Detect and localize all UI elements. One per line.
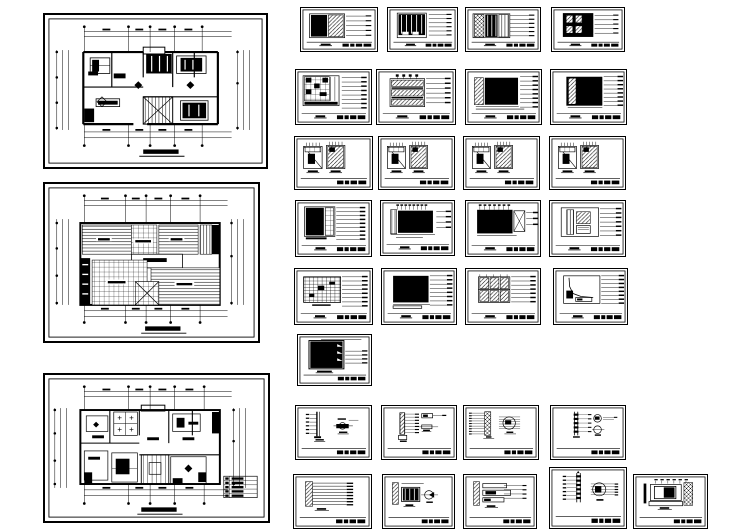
- detail-27-sheet: [382, 474, 455, 529]
- detail-11-linework: [464, 137, 539, 189]
- detail-08-sheet: [550, 69, 627, 125]
- detail-14-sheet: [380, 200, 455, 256]
- detail-08-linework: [551, 70, 626, 124]
- detail-22-sheet: [295, 405, 372, 460]
- plan-upper-floor-plan-sheet: [43, 13, 268, 169]
- detail-09-sheet: [294, 136, 373, 190]
- detail-05-sheet: [295, 69, 372, 125]
- detail-26-linework: [294, 475, 371, 528]
- ceiling-plan-linework: [45, 184, 258, 341]
- detail-17-sheet: [294, 268, 373, 325]
- detail-12-sheet: [549, 136, 626, 190]
- detail-16-sheet: [549, 200, 626, 257]
- detail-15-linework: [466, 201, 540, 256]
- detail-21-sheet: [297, 334, 372, 386]
- detail-02-linework: [388, 8, 457, 51]
- detail-04-linework: [552, 8, 624, 51]
- detail-18-sheet: [381, 268, 457, 325]
- detail-11-sheet: [463, 136, 540, 190]
- detail-03-linework: [466, 8, 540, 51]
- detail-27-linework: [383, 475, 454, 528]
- detail-24-sheet: [463, 405, 539, 460]
- detail-06-linework: [377, 70, 455, 124]
- detail-20-sheet: [553, 268, 628, 325]
- detail-26-sheet: [293, 474, 372, 529]
- detail-15-sheet: [465, 200, 541, 257]
- detail-30-linework: [634, 475, 707, 528]
- detail-20-linework: [554, 269, 627, 324]
- ceiling-plan-plan-sheet: [43, 182, 260, 343]
- detail-03-sheet: [465, 7, 541, 52]
- detail-07-sheet: [465, 69, 542, 125]
- detail-29-linework: [550, 468, 626, 528]
- detail-13-sheet: [295, 200, 372, 257]
- detail-01-sheet: [300, 7, 378, 52]
- cad-drawing-set-canvas: [0, 0, 749, 530]
- detail-25-sheet: [550, 405, 626, 460]
- detail-19-linework: [466, 269, 540, 324]
- detail-24-linework: [464, 406, 538, 459]
- plan-upper-floor-linework: [45, 15, 266, 167]
- detail-23-linework: [382, 406, 456, 459]
- detail-01-linework: [301, 8, 377, 51]
- detail-18-linework: [382, 269, 456, 324]
- detail-25-linework: [551, 406, 625, 459]
- detail-04-sheet: [551, 7, 625, 52]
- detail-16-linework: [550, 201, 625, 256]
- detail-10-linework: [379, 137, 454, 189]
- detail-09-linework: [295, 137, 372, 189]
- detail-12-linework: [550, 137, 625, 189]
- detail-06-sheet: [376, 69, 456, 125]
- detail-14-linework: [381, 201, 454, 255]
- detail-28-sheet: [463, 474, 537, 529]
- detail-23-sheet: [381, 405, 457, 460]
- detail-13-linework: [296, 201, 371, 256]
- detail-21-linework: [298, 335, 371, 385]
- detail-19-sheet: [465, 268, 541, 325]
- detail-30-sheet: [633, 474, 708, 529]
- plan-lower-floor-linework: [45, 375, 268, 521]
- detail-28-linework: [464, 475, 536, 528]
- detail-02-sheet: [387, 7, 458, 52]
- detail-22-linework: [296, 406, 371, 459]
- detail-10-sheet: [378, 136, 455, 190]
- detail-17-linework: [295, 269, 372, 324]
- plan-lower-floor-plan-sheet: [43, 373, 270, 523]
- detail-05-linework: [296, 70, 371, 124]
- detail-29-sheet: [549, 467, 627, 529]
- detail-07-linework: [466, 70, 541, 124]
